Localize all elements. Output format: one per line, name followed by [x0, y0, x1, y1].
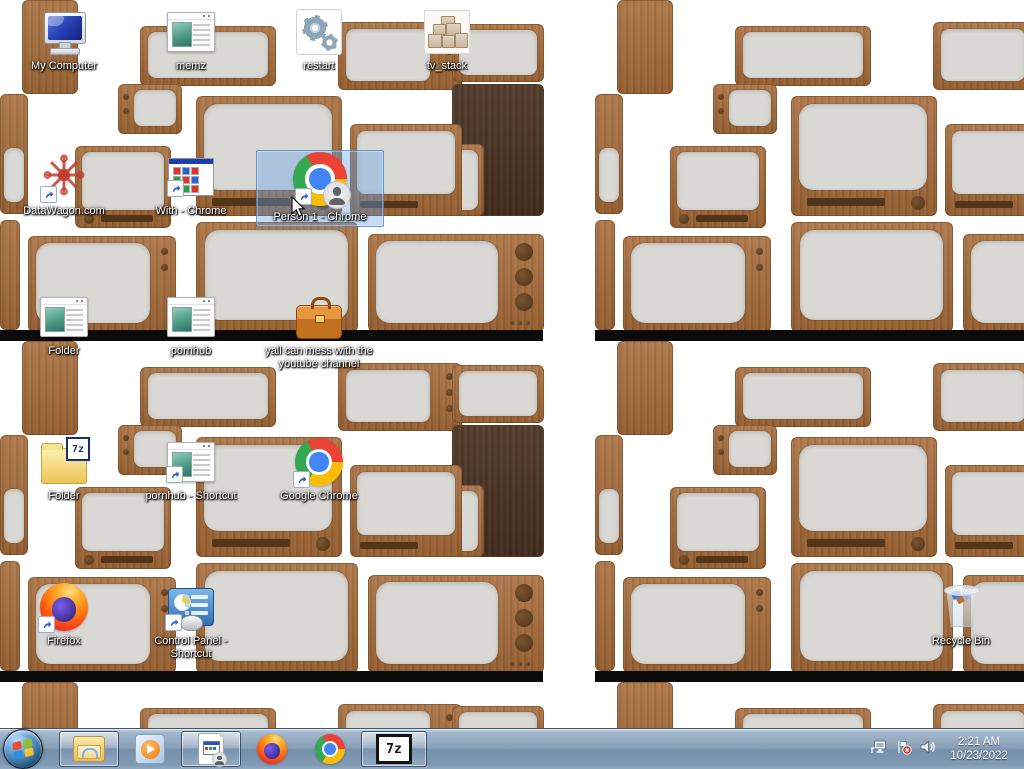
- tv-graphic: [713, 84, 777, 134]
- tv-graphic: [791, 222, 953, 332]
- firefox-icon: [40, 583, 88, 631]
- tv-graphic: [735, 708, 871, 728]
- desktop-icon-google-chrome[interactable]: Google Chrome: [271, 438, 367, 503]
- tv-graphic: [945, 124, 1024, 216]
- tv-graphic: [933, 704, 1024, 728]
- shortcut-arrow-icon: [38, 616, 55, 633]
- tv-graphic: [945, 465, 1024, 557]
- tv-graphic: [368, 234, 544, 332]
- shortcut-arrow-icon: [167, 180, 184, 197]
- desktop-icon-my-computer[interactable]: My Computer: [16, 8, 112, 73]
- tv-graphic: [338, 704, 462, 728]
- shortcut-arrow-icon: [40, 186, 57, 203]
- taskbar-item-firefox[interactable]: [245, 732, 299, 766]
- chrome-icon: [295, 438, 343, 486]
- taskbar: 7z 2:21 AM 10/23/2022: [0, 728, 1024, 769]
- icon-label: Recycle Bin: [932, 635, 990, 648]
- datawagon-logo-icon: [40, 153, 88, 201]
- mouse-cursor: [291, 196, 306, 223]
- desktop-icon-firefox[interactable]: Firefox: [16, 583, 112, 648]
- tv-graphic: [933, 363, 1024, 431]
- tv-graphic: [963, 234, 1024, 332]
- desktop-icon-pornhub-shortcut[interactable]: pornhub - Shortcut: [131, 438, 251, 503]
- desktop-icon-recycle-bin[interactable]: Recycle Bin: [913, 583, 1009, 648]
- icon-label: pornhub - Shortcut: [145, 490, 236, 503]
- tv-graphic: [670, 487, 766, 569]
- seven-zip-badge-icon: 7z: [66, 437, 90, 461]
- action-center-flag-icon[interactable]: [896, 739, 912, 760]
- icon-label: yall can mess with the youtube channel: [259, 345, 379, 371]
- app-window-icon: [167, 8, 215, 56]
- wallpaper-black-stripe: [595, 671, 1024, 682]
- wallpaper-black-stripe: [595, 330, 1024, 341]
- icon-label: memz: [176, 60, 206, 73]
- icon-label: Control Panel - Shortcut: [143, 635, 239, 661]
- system-tray: 2:21 AM 10/23/2022: [870, 729, 1024, 769]
- desktop-icon-pornhub[interactable]: pornhub: [143, 293, 239, 358]
- shortcut-arrow-icon: [166, 466, 183, 483]
- windows-flag-icon: [12, 739, 34, 760]
- taskbar-item-windows-explorer[interactable]: [59, 731, 119, 767]
- firefox-icon: [257, 734, 287, 764]
- tv-graphic: [338, 363, 462, 431]
- desktop-icon-datawagon[interactable]: DataWagon.com: [16, 153, 112, 218]
- tv-graphic: [22, 682, 78, 728]
- clock-time: 2:21 AM: [944, 735, 1014, 749]
- icon-label: Person 1 - Chrome: [274, 211, 367, 224]
- my-computer-icon: [40, 8, 88, 56]
- desktop-screen: { "wallpaper": { "description": "tiled c…: [0, 0, 1024, 768]
- tv-graphic: [791, 437, 937, 557]
- icon-label: With - Chrome: [156, 205, 227, 218]
- media-player-icon: [135, 734, 165, 764]
- start-button[interactable]: [3, 729, 43, 769]
- desktop-icon-memz[interactable]: memz: [143, 8, 239, 73]
- icon-label: My Computer: [31, 60, 97, 73]
- icon-label: Firefox: [47, 635, 81, 648]
- app-window-icon: [167, 438, 215, 486]
- icon-label: Google Chrome: [280, 490, 358, 503]
- icon-label: DataWagon.com: [23, 205, 105, 218]
- person-badge-icon: [323, 181, 351, 209]
- explorer-folder-icon: [73, 736, 105, 762]
- tv-graphic: [595, 561, 615, 671]
- folder-icon: 7z: [40, 438, 88, 486]
- taskbar-item-seven-zip[interactable]: 7z: [361, 731, 427, 767]
- browser-window-icon: [167, 153, 215, 201]
- tv-graphic: [595, 94, 623, 214]
- tv-graphic: [617, 682, 673, 728]
- desktop-icon-control-panel[interactable]: Control Panel - Shortcut: [143, 583, 239, 661]
- tv-graphic: [670, 146, 766, 228]
- desktop-icon-briefcase[interactable]: yall can mess with the youtube channel: [259, 293, 379, 371]
- tv-graphic: [140, 708, 276, 728]
- shortcut-arrow-icon: [293, 471, 310, 488]
- mouse-icon: [180, 615, 203, 631]
- icon-label: Folder: [48, 345, 79, 358]
- tv-graphic: [623, 577, 771, 673]
- icon-label: tv_stack: [427, 60, 467, 73]
- desktop-icon-person1-chrome[interactable]: Person 1 - Chrome: [256, 150, 384, 227]
- wallpaper-black-stripe: [0, 671, 543, 682]
- desktop-icon-restart[interactable]: restart: [271, 8, 367, 73]
- tv-graphic: [735, 26, 871, 86]
- clock-date: 10/23/2022: [944, 749, 1014, 763]
- wallpaper-tile: [595, 0, 1024, 341]
- tv-stack-image-icon: [423, 8, 471, 56]
- tv-graphic: [735, 367, 871, 427]
- app-window-icon: [40, 293, 88, 341]
- tv-graphic: [452, 706, 544, 728]
- icon-label: restart: [303, 60, 334, 73]
- chrome-icon: [315, 734, 345, 764]
- taskbar-item-chrome[interactable]: [303, 732, 357, 766]
- control-panel-icon: [167, 583, 215, 631]
- desktop-icon-tv-stack[interactable]: tv_stack: [399, 8, 495, 73]
- tv-graphic: [713, 425, 777, 475]
- person-badge-icon: [212, 752, 227, 767]
- network-tray-icon[interactable]: [870, 739, 888, 760]
- tv-graphic: [617, 0, 673, 94]
- wallpaper-tile: [0, 682, 595, 728]
- tv-graphic: [623, 236, 771, 332]
- taskbar-item-windows-media-player[interactable]: [123, 732, 177, 766]
- recycle-bin-icon: [937, 583, 985, 631]
- tv-graphic: [933, 22, 1024, 90]
- tv-graphic: [595, 220, 615, 330]
- tv-graphic: [118, 84, 182, 134]
- taskbar-clock[interactable]: 2:21 AM 10/23/2022: [944, 735, 1014, 763]
- taskbar-item-app-document[interactable]: [181, 731, 241, 767]
- tv-graphic: [791, 96, 937, 216]
- icon-label: Folder: [48, 490, 79, 503]
- desktop-icon-folder-7z[interactable]: 7z Folder: [16, 438, 112, 503]
- desktop-icon-folder-html[interactable]: Folder: [16, 293, 112, 358]
- seven-zip-icon: 7z: [376, 734, 412, 764]
- icon-label: pornhub: [171, 345, 211, 358]
- volume-tray-icon[interactable]: [920, 739, 936, 760]
- app-document-icon: [198, 733, 224, 765]
- shortcut-arrow-icon: [165, 614, 182, 631]
- tv-graphic: [368, 575, 544, 673]
- wallpaper-tile: [595, 682, 1024, 728]
- desktop-icon-with-chrome[interactable]: With - Chrome: [143, 153, 239, 218]
- briefcase-icon: [295, 293, 343, 341]
- tv-graphic: [617, 341, 673, 435]
- app-window-icon: [167, 293, 215, 341]
- tv-graphic: [595, 435, 623, 555]
- gears-icon: [295, 8, 343, 56]
- tv-graphic: [452, 365, 544, 423]
- tv-graphic: [140, 367, 276, 427]
